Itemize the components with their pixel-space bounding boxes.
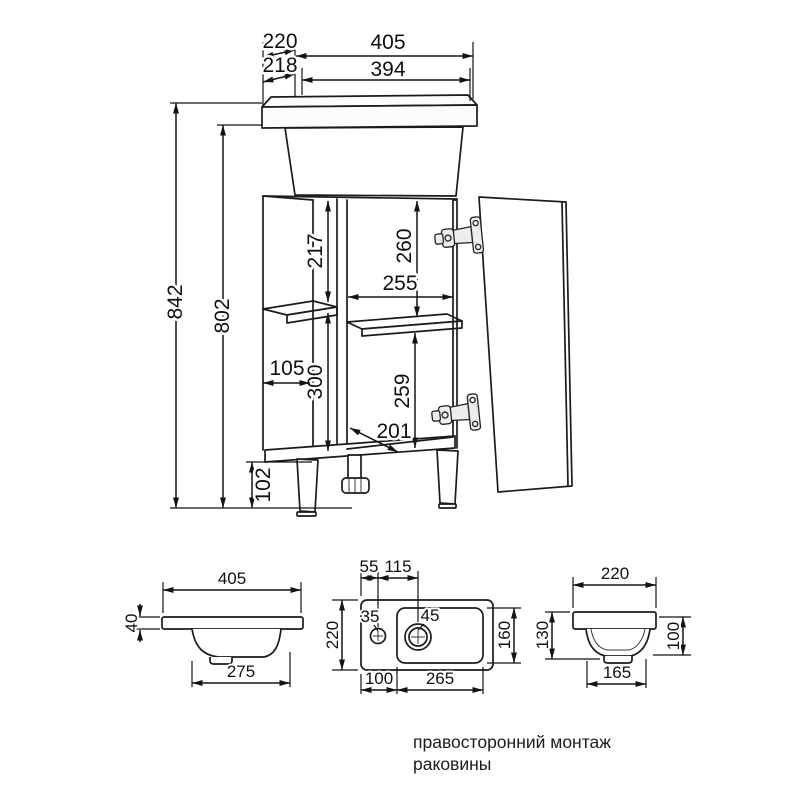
dim-opening-width: 255	[382, 272, 417, 295]
sink-front-view: 405 40 275	[122, 569, 303, 687]
side-dim-height: 130	[533, 621, 552, 649]
cabinet-leg-right	[437, 450, 458, 508]
top-dim-faucet-hole: 35	[361, 607, 380, 626]
dim-overall-depth: 220	[262, 30, 297, 53]
dim-basin-depth: 218	[262, 54, 297, 77]
top-dim-left-offset: 100	[365, 669, 393, 688]
sink-side-rim	[573, 612, 656, 629]
hinge-icon	[433, 217, 484, 258]
sink-side-view: 220 130 100 165	[533, 564, 691, 688]
dim-lower-opening-height: 259	[391, 373, 414, 408]
technical-drawing-canvas: 220 218 405 394 842 802 102 217 260 300 …	[0, 0, 800, 800]
side-dim-bowl-height: 100	[664, 622, 683, 650]
caption-line-2: раковины	[413, 754, 491, 774]
dim-total-height: 842	[164, 284, 187, 319]
top-dim-bowl-depth: 160	[495, 621, 514, 649]
sink-front-rim	[162, 617, 303, 629]
top-dim-faucet-offset: 55	[360, 557, 379, 576]
sink-front-bowl	[192, 629, 281, 657]
dim-leg-height: 102	[252, 467, 275, 502]
front-dim-width: 405	[218, 569, 246, 588]
sink-top-view: 55 115 220 35 45 160 100 265	[323, 557, 521, 694]
caption: правосторонний монтаж раковины	[413, 732, 611, 774]
sink-basin-body	[285, 127, 463, 196]
front-dim-bowl-width: 275	[227, 662, 255, 681]
adjustable-foot	[342, 455, 369, 493]
hinge-icon	[430, 394, 481, 435]
front-dim-rim-height: 40	[122, 614, 141, 633]
dim-upper-opening-height: 260	[393, 228, 416, 263]
top-dim-drain-hole: 45	[421, 606, 440, 625]
top-dim-drain-offset: 115	[384, 557, 411, 576]
cabinet-door	[479, 197, 572, 492]
dim-opening-depth: 201	[376, 420, 411, 443]
sink-rim-front	[262, 105, 477, 128]
dim-overall-width: 405	[370, 31, 405, 54]
side-dim-depth: 220	[601, 564, 629, 583]
top-dim-bowl-width: 265	[426, 669, 454, 688]
dim-upper-section-height: 217	[304, 233, 327, 268]
dim-lower-section-height: 300	[304, 364, 327, 399]
caption-line-1: правосторонний монтаж	[413, 732, 611, 752]
dim-cabinet-height: 802	[211, 298, 234, 333]
top-dim-depth: 220	[323, 621, 342, 649]
side-dim-bowl-depth: 165	[603, 663, 631, 682]
dim-basin-width: 394	[370, 58, 405, 81]
dim-side-shelf-depth: 105	[269, 357, 304, 380]
technical-drawing-page: 220 218 405 394 842 802 102 217 260 300 …	[0, 0, 800, 800]
